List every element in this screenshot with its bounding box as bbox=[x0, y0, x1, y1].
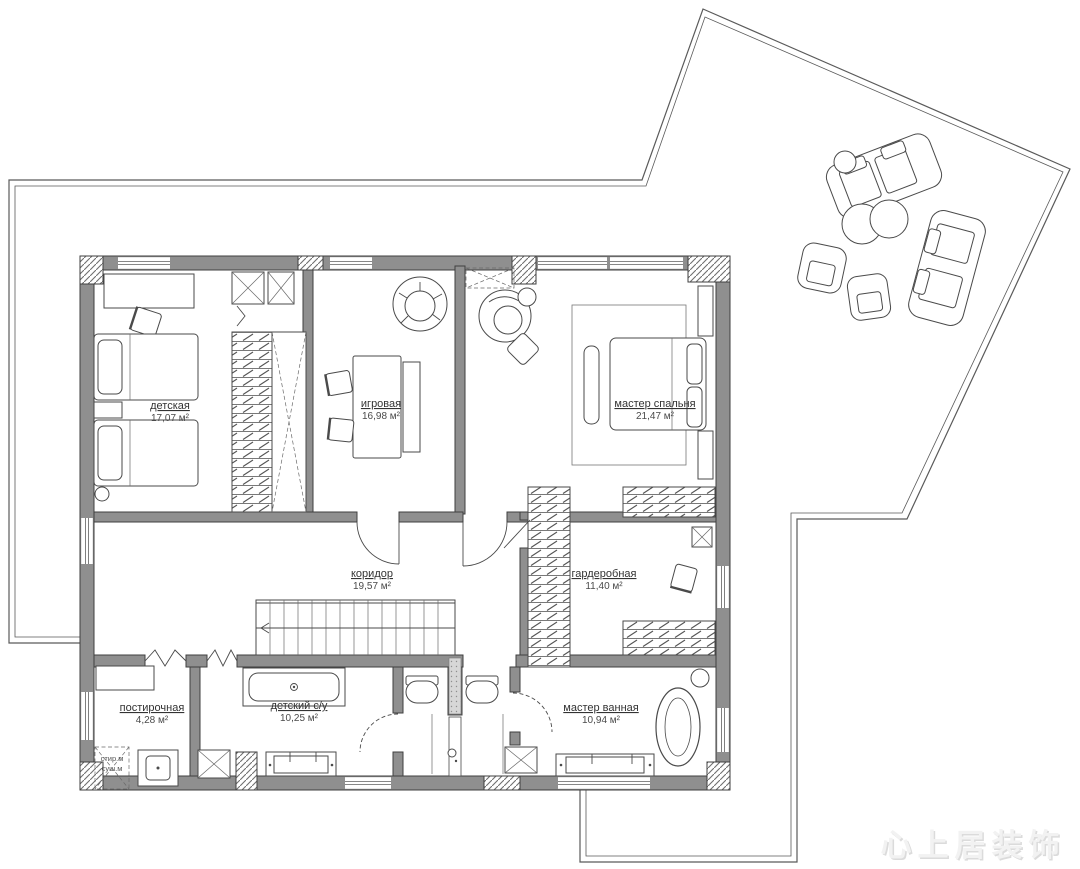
pillow bbox=[98, 340, 122, 394]
svg-text:心上居装饰: 心上居装饰 bbox=[881, 828, 1066, 863]
room-label-laundry-area: 4,28 м² bbox=[136, 715, 169, 726]
door-swing bbox=[357, 522, 399, 564]
chair-icon bbox=[130, 307, 162, 338]
coffee-table-icon bbox=[870, 200, 908, 238]
door-swing bbox=[360, 714, 398, 752]
room-label-corridor-name: коридор bbox=[351, 568, 393, 580]
room-playroom-furniture bbox=[325, 277, 447, 458]
room-master-bathroom-fixtures bbox=[556, 669, 709, 776]
dryer-label: суш.м bbox=[102, 764, 123, 773]
pillow bbox=[98, 426, 122, 480]
window bbox=[610, 257, 683, 269]
wardrobe-unit bbox=[623, 621, 715, 655]
room-label-wardrobe-name: гардеробная bbox=[572, 568, 637, 580]
nightstand bbox=[698, 431, 713, 479]
door-leaf bbox=[504, 520, 530, 548]
floor-lamp-icon bbox=[95, 487, 109, 501]
bench bbox=[584, 346, 599, 424]
chair-icon bbox=[328, 418, 354, 442]
window bbox=[330, 257, 372, 269]
room-master-bedroom-furniture bbox=[572, 286, 713, 479]
door-knob bbox=[448, 749, 456, 757]
wardrobe-unit bbox=[528, 487, 570, 667]
watermark: 心上居装饰 心上居装饰 bbox=[881, 828, 1068, 865]
door-swing bbox=[513, 693, 552, 732]
counter bbox=[96, 666, 154, 690]
window bbox=[118, 257, 170, 269]
staircase bbox=[256, 600, 455, 655]
outdoor-armchair-icon bbox=[846, 272, 892, 321]
vanity-sink bbox=[266, 752, 336, 776]
room-label-children-area: 17,07 м² bbox=[151, 413, 190, 424]
stool-icon bbox=[691, 669, 709, 687]
terrace-furniture bbox=[796, 130, 989, 328]
window bbox=[717, 708, 729, 752]
room-label-master-bedroom-area: 21,47 м² bbox=[636, 411, 675, 422]
corridor-stairs bbox=[256, 600, 455, 655]
room-label-wardrobe-area: 11,40 м² bbox=[585, 581, 623, 592]
wardrobe-unit bbox=[272, 332, 306, 512]
room-label-children-name: детская bbox=[150, 400, 190, 412]
nightstand bbox=[94, 402, 122, 418]
shelf bbox=[403, 362, 420, 452]
room-label-master-bath-area: 10,94 м² bbox=[582, 715, 621, 726]
shaft-box bbox=[232, 272, 264, 304]
room-label-playroom-area: 16,98 м² bbox=[362, 411, 401, 422]
folding-door-icon bbox=[145, 650, 186, 666]
room-label-master-bath-name: мастер ванная bbox=[563, 702, 638, 714]
room-label-children-bath-area: 10,25 м² bbox=[280, 713, 319, 724]
shaft-box bbox=[268, 272, 294, 304]
folding-door-icon bbox=[207, 650, 237, 666]
chair-icon bbox=[325, 370, 352, 396]
wardrobe-unit bbox=[623, 487, 715, 517]
room-label-master-bedroom-name: мастер спальня bbox=[614, 398, 695, 410]
chair-icon bbox=[670, 564, 697, 593]
desk bbox=[104, 274, 194, 308]
double-vanity bbox=[556, 754, 654, 776]
window bbox=[345, 777, 391, 789]
room-children-furniture bbox=[94, 272, 306, 512]
pouf-icon bbox=[518, 288, 536, 306]
washer-label: стир.м bbox=[101, 754, 124, 763]
door-swing bbox=[463, 522, 507, 566]
shower-glass-panel bbox=[449, 717, 461, 776]
shaft-box bbox=[692, 527, 712, 547]
sink-unit bbox=[138, 750, 178, 786]
window bbox=[81, 692, 93, 740]
shaft-box bbox=[505, 747, 537, 773]
nightstand bbox=[698, 286, 713, 336]
outdoor-armchair-icon bbox=[796, 241, 849, 295]
built-in-wardrobe bbox=[466, 268, 514, 288]
outdoor-sofa-icon bbox=[906, 208, 989, 329]
room-label-children-bath-name: детский с/у bbox=[271, 700, 328, 712]
wardrobe-unit bbox=[232, 332, 272, 512]
room-label-corridor-area: 19,57 м² bbox=[353, 581, 392, 592]
window bbox=[558, 777, 650, 789]
side-table-icon bbox=[834, 151, 856, 173]
room-children-bathroom-fixtures bbox=[198, 668, 345, 778]
folding-door-icon bbox=[237, 306, 245, 326]
window bbox=[81, 518, 93, 564]
toilet-icon bbox=[406, 676, 438, 703]
duct-shaft bbox=[449, 658, 461, 714]
shaft-box bbox=[198, 750, 230, 778]
window bbox=[717, 566, 729, 608]
window bbox=[538, 257, 607, 269]
room-label-laundry-name: постирочная bbox=[120, 702, 185, 714]
room-label-playroom-name: игровая bbox=[361, 398, 401, 410]
toilet-icon bbox=[466, 676, 498, 703]
floor-plan-canvas: детская 17,07 м² игровая 16,98 м² мастер… bbox=[0, 0, 1080, 869]
pillow bbox=[687, 344, 702, 384]
floor-plan-page: детская 17,07 м² игровая 16,98 м² мастер… bbox=[0, 0, 1080, 869]
